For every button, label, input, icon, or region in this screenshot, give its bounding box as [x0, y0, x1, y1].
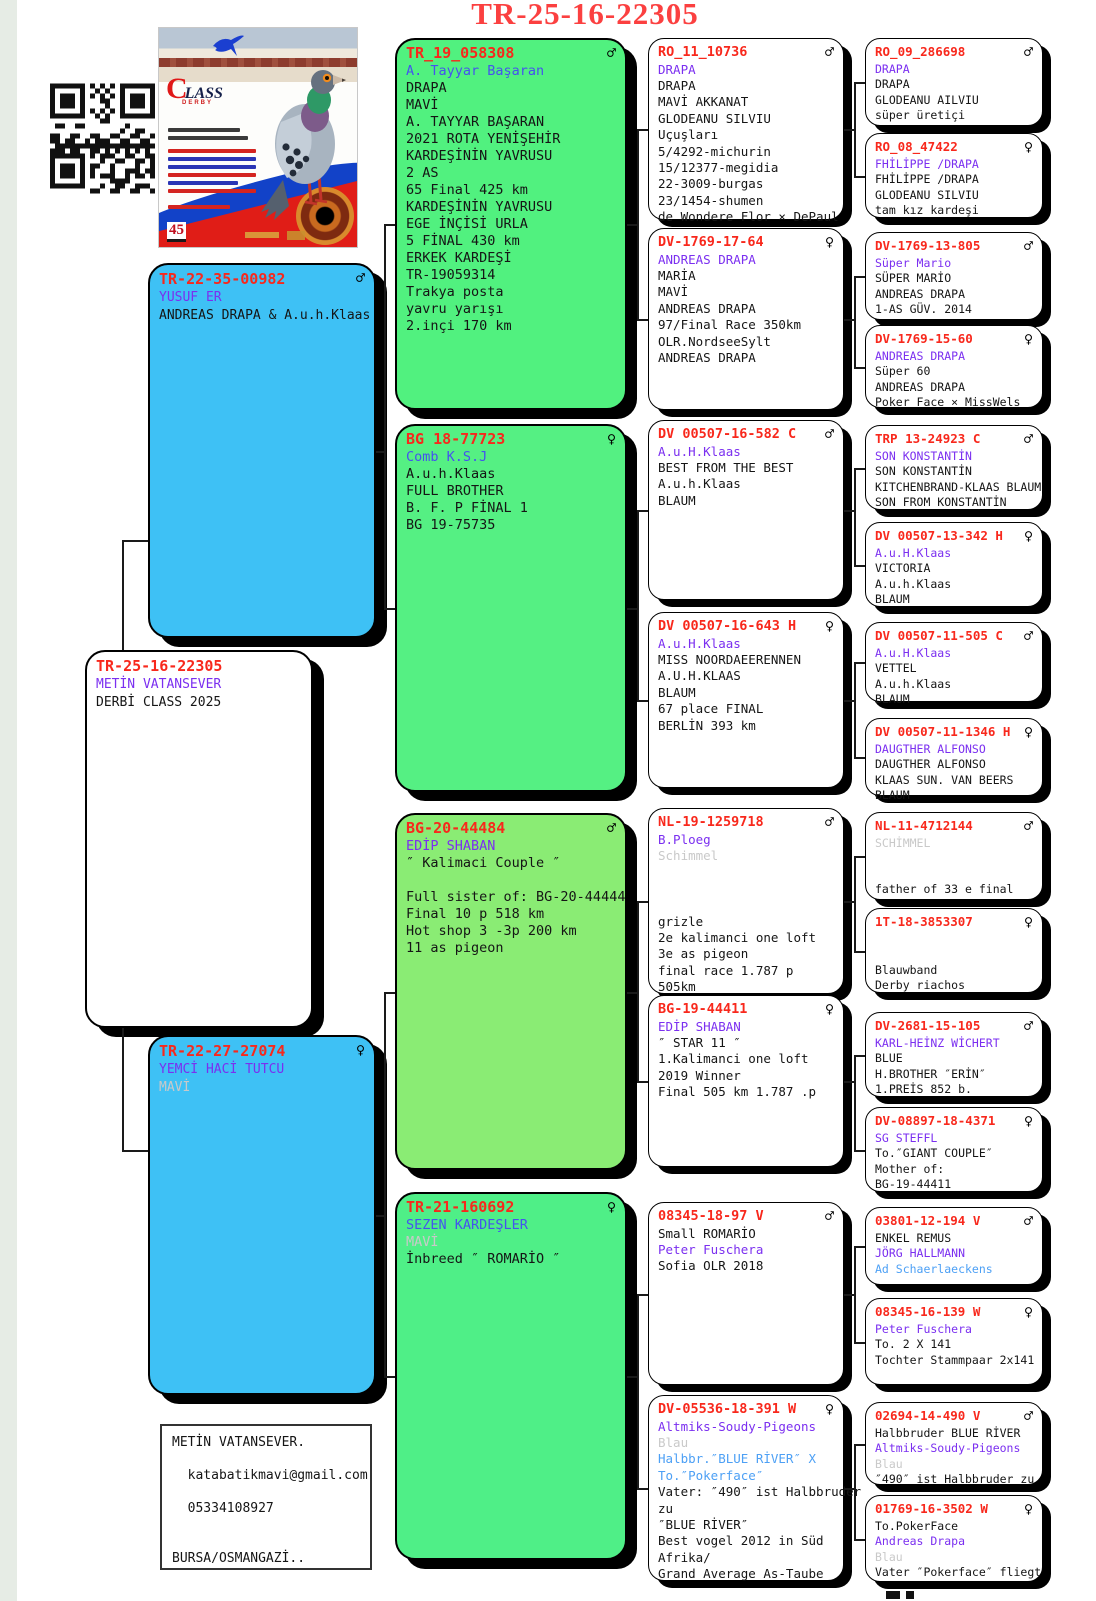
box-line: father of 33 e final [875, 882, 1037, 898]
sex-symbol: ♀ [1024, 724, 1037, 741]
box-line: ANDREAS DRAPA [875, 287, 1037, 303]
pedigree-box-g2: BG 18-77723♀ Comb K.S.JA.u.h.KlaasFULL B… [395, 424, 627, 792]
box-line: A.u.h.Klaas [875, 677, 1037, 693]
sex-symbol: ♀ [1024, 1304, 1037, 1321]
box-line: SCHİMMEL [875, 836, 1037, 852]
box-line: ANDREAS DRAPA [658, 350, 838, 366]
box-line: İnbreed ″ ROMARİO ″ [406, 1251, 620, 1268]
box-line: Afrika/ [658, 1550, 838, 1566]
sex-symbol: ♀ [356, 1042, 369, 1059]
box-line [875, 932, 1037, 948]
box-line: BLAUM [875, 788, 1037, 804]
box-line: Uçuşları [658, 127, 838, 143]
connector-line [637, 1294, 648, 1296]
sex-symbol: ♀ [1024, 1501, 1037, 1518]
box-line: DRAPA [875, 77, 1037, 93]
ring-number: DV-1769-13-805 [875, 238, 980, 254]
ring-number: TRP 13-24923 C [875, 431, 980, 447]
box-line [875, 851, 1037, 867]
ring-number: TR_19_058308 [406, 45, 514, 62]
box-line: Peter Fuschera [658, 1242, 838, 1258]
box-line: A.u.H.Klaas [658, 636, 838, 652]
box-line: BLUE [875, 1051, 1037, 1067]
connector-line [854, 468, 856, 565]
box-line: yavru yarışı [406, 301, 620, 318]
pedigree-box-c4h: DV 00507-11-1346 H♀ DAUGTHER ALFONSODAUG… [865, 718, 1043, 796]
pedigree-box-c4l: DV-08897-18-4371♀ SG STEFFLTo.″GIANT COU… [865, 1107, 1043, 1192]
box-line: SON KONSTANTİN [875, 464, 1037, 480]
box-line: MAVİ [406, 97, 620, 114]
pedigree-box-c4c: DV-1769-13-805♂ Süper MarioSÜPER MARİOAN… [865, 232, 1043, 320]
box-lines: Altmiks-Soudy-PigeonsBlauHalbbr.″BLUE Rİ… [658, 1419, 838, 1583]
box-line: A. TAYYAR BAŞARAN [406, 114, 620, 131]
box-line: ANDREAS DRAPA & A.u.h.Klaas [159, 307, 369, 325]
sex-symbol: ♂ [1024, 1213, 1037, 1230]
box-line: A.u.h.Klaas [875, 577, 1037, 593]
box-header: TR-22-27-27074 ♀ [159, 1042, 369, 1060]
box-line: katabatikmavi@gmail.com [172, 1468, 362, 1485]
box-line: MARİA [658, 268, 838, 284]
box-lines: SON KONSTANTİNSON KONSTANTİNKITCHENBRAND… [875, 449, 1037, 511]
ring-number: DV-08897-18-4371 [875, 1113, 995, 1129]
box-line: Tochter Stammpaar 2x141 [875, 1353, 1037, 1369]
box-line [172, 1534, 362, 1551]
ring-number: 03801-12-194 V [875, 1213, 980, 1229]
box-line: FHİLİPPE /DRAPA [875, 157, 1037, 173]
pedigree-box-c4d: DV-1769-15-60♀ ANDREAS DRAPASüper 60ANDR… [865, 325, 1043, 408]
box-line: 22-3009-burgas [658, 176, 838, 192]
box-line: 11 as pigeon [406, 940, 620, 957]
box-lines: FHİLİPPE /DRAPAFHİLİPPE /DRAPAGLODEANU S… [875, 157, 1037, 219]
connector-line [637, 700, 648, 702]
box-line [172, 1452, 362, 1469]
box-lines: A. Tayyar BaşaranDRAPAMAVİA. TAYYAR BAŞA… [406, 63, 620, 335]
box-line: To.PokerFace [875, 1519, 1037, 1535]
box-line: final race 1.787 p [658, 963, 838, 979]
box-line: Altmiks-Soudy-Pigeons [875, 1441, 1037, 1457]
box-line: Süper 60 [875, 364, 1037, 380]
connector-line [854, 82, 865, 84]
sex-symbol: ♂ [1024, 238, 1037, 255]
box-line: 1.PREİS 852 b. [875, 1082, 1037, 1098]
ring-number: DV-2681-15-105 [875, 1018, 980, 1034]
box-line: 2e kalimanci one loft [658, 930, 838, 946]
box-line: KARL-HEİNZ WİCHERT [875, 1036, 1037, 1052]
box-line: FHİLİPPE /DRAPA [875, 172, 1037, 188]
pedigree-box-c3c: DV 00507-16-582 C♂ A.u.H.KlaasBEST FROM … [648, 420, 844, 600]
pedigree-box-c4p: 01769-16-3502 W♀ To.PokerFaceAndreas Dra… [865, 1495, 1043, 1582]
box-line: Vater: ″490″ ist Halbbruder [658, 1484, 838, 1500]
box-line: 67 place FINAL [658, 701, 838, 717]
pedigree-box-subject: TR-25-16-22305 METİN VATANSEVERDERBİ CLA… [85, 650, 313, 1028]
sex-symbol: ♀ [1024, 139, 1037, 156]
box-lines: SCHİMMELfather of 33 e final [875, 836, 1037, 898]
box-line: Blau [875, 1457, 1037, 1473]
box-line: 65 Final 425 km [406, 182, 620, 199]
box-line: ERKEK KARDEŞİ [406, 250, 620, 267]
box-line: To. 2 X 141 [875, 1337, 1037, 1353]
page-edge-strip [0, 0, 17, 1601]
box-line: MAVİ [159, 1079, 369, 1097]
box-line: ″ STAR 11 ″ [658, 1035, 838, 1051]
box-line: A. Tayyar Başaran [406, 63, 620, 80]
box-line: BLAUM [875, 592, 1037, 608]
box-lines: ENKEL REMUSJÖRG HALLMANNAd Schaerlaecken… [875, 1231, 1037, 1278]
box-line: TR-19059314 [406, 267, 620, 284]
connector-line [122, 540, 148, 542]
connector-line [854, 468, 865, 470]
ring-number: DV-1769-15-60 [875, 331, 973, 347]
box-line [875, 947, 1037, 963]
connector-line [854, 1246, 865, 1248]
connector-line [637, 1081, 648, 1083]
box-line: BEST FROM THE BEST [658, 460, 838, 476]
connector-line [854, 951, 865, 953]
qr-code-pattern [50, 83, 155, 194]
box-line: METİN VATANSEVER [96, 676, 306, 694]
pedigree-box-c3b: DV-1769-17-64♀ ANDREAS DRAPAMARİAMAVİAND… [648, 228, 844, 410]
sex-symbol: ♂ [1024, 1018, 1037, 1035]
box-line: JÖRG HALLMANN [875, 1246, 1037, 1262]
connector-line [637, 510, 648, 512]
box-line: A.u.h.Klaas [658, 476, 838, 492]
pedigree-box-c3e: NL-19-1259718♂ B.PloegSchimmelgrizle2e k… [648, 808, 844, 994]
page-title: TR-25-16-22305 [420, 0, 750, 32]
box-line: EDİP SHABAN [658, 1019, 838, 1035]
box-line: ″BLUE RİVER″ [658, 1517, 838, 1533]
box-line: Final 10 p 518 km [406, 906, 620, 923]
box-line: To.″Pokerface″ [658, 1468, 838, 1484]
badge-45: 45 [167, 222, 186, 242]
box-lines: KARL-HEİNZ WİCHERTBLUEH.BROTHER ″ERİN″1.… [875, 1036, 1037, 1098]
ring-number: TR-21-160692 [406, 1199, 514, 1216]
connector-line [384, 992, 386, 1376]
connector-line [844, 1294, 856, 1296]
pedigree-box-c4j: 1T-18-3853307♀ BlauwbandDerby riachos [865, 908, 1043, 993]
box-line: Final 505 km 1.787 .p [658, 1084, 838, 1100]
box-line: B.Ploeg [658, 832, 838, 848]
box-line: ″490″ ist Halbbruder zu [875, 1472, 1037, 1488]
connector-line [637, 129, 648, 131]
connector-line [637, 901, 648, 903]
box-line: A.U.H.KLAAS [658, 668, 838, 684]
connector-line [854, 1539, 865, 1541]
ring-number: RO_11_10736 [658, 44, 747, 60]
box-line: DRAPA [658, 62, 838, 78]
box-line: SÜPER MARİO [875, 271, 1037, 287]
box-lines: DRAPADRAPAMAVİ AKKANATGLODEANU SILVIUUçu… [658, 62, 838, 226]
pedigree-box-mother: TR-22-27-27074 ♀ YEMCİ HACİ TUTCUMAVİ [148, 1035, 376, 1395]
box-line: DRAPA [658, 78, 838, 94]
box-line: süper üretiçi [875, 108, 1037, 124]
box-lines: EDİP SHABAN″ STAR 11 ″1.Kalimanci one lo… [658, 1019, 838, 1101]
connector-line [854, 662, 856, 757]
box-line: grizle [658, 914, 838, 930]
pedigree-box-c4e: TRP 13-24923 C♂ SON KONSTANTİNSON KONSTA… [865, 425, 1043, 510]
sex-symbol: ♂ [607, 820, 620, 837]
sex-symbol: ♀ [1024, 914, 1037, 931]
box-line: MAVİ [406, 1234, 620, 1251]
connector-line [854, 276, 865, 278]
box-line: Full sister of: BG-20-44444 [406, 889, 620, 906]
box-line: GLODEANU SILVIU [658, 111, 838, 127]
connector-line [384, 224, 386, 608]
pedigree-box-c3g: 08345-18-97 V♂ Small ROMARİOPeter Fusche… [648, 1202, 844, 1385]
box-line [658, 897, 838, 913]
connector-line [854, 1444, 856, 1539]
pedigree-box-c4g: DV 00507-11-505 C♂ A.u.H.KlaasVETTELA.u.… [865, 622, 1043, 702]
connector-line [637, 901, 639, 1081]
pedigree-box-g4: TR-21-160692♀ SEZEN KARDEŞLERMAVİİnbreed… [395, 1192, 627, 1560]
box-line: H.BROTHER ″ERİN″ [875, 1067, 1037, 1083]
box-lines: Halbbruder BLUE RİVERAltmiks-Soudy-Pigeo… [875, 1426, 1037, 1488]
box-line: Peter Fuschera [875, 1322, 1037, 1338]
sex-symbol: ♂ [825, 44, 838, 61]
gold-trophy-mark [287, 231, 305, 240]
sex-symbol: ♂ [825, 426, 838, 443]
pedigree-box-c4a: RO_09_286698♂ DRAPADRAPAGLODEANU AILVIUs… [865, 38, 1043, 126]
ring-number: BG-19-44411 [658, 1001, 747, 1017]
box-line: Grand Average As-Taube [658, 1566, 838, 1582]
box-line: 2 AS [406, 165, 620, 182]
box-line [658, 881, 838, 897]
box-line: Blauwband [875, 963, 1037, 979]
box-line: MAVİ [658, 284, 838, 300]
box-lines: A.u.H.KlaasMISS NOORDAEERENNENA.U.H.KLAA… [658, 636, 838, 734]
connector-line [637, 510, 639, 700]
connector-line [854, 1055, 865, 1057]
connector-line [637, 319, 648, 321]
sex-symbol: ♀ [607, 431, 620, 448]
connector-line [384, 992, 395, 994]
pigeon-photo-card: CLASS DERBY 45 [158, 27, 358, 248]
box-line: 15/12377-megidia [658, 160, 838, 176]
pedigree-box-father: TR-22-35-00982 ♂ YUSUF ERANDREAS DRAPA &… [148, 263, 376, 638]
sex-symbol: ♂ [825, 814, 838, 831]
box-line: 2.inçi 170 km [406, 318, 620, 335]
box-line: YEMCİ HACİ TUTCU [159, 1061, 369, 1079]
pedigree-box-c4f: DV 00507-13-342 H♀ A.u.H.KlaasVICTORIAA.… [865, 522, 1043, 607]
box-line: Schimmel [658, 848, 838, 864]
sex-symbol: ♀ [1024, 1113, 1037, 1130]
box-line: A.u.h.Klaas [406, 466, 620, 483]
box-line: KLAAS SUN. VAN BEERS [875, 773, 1037, 789]
sex-symbol: ♂ [1024, 628, 1037, 645]
box-line: VETTEL [875, 661, 1037, 677]
box-line: ANDREAS DRAPA [658, 252, 838, 268]
box-line: Small ROMARİO [658, 1226, 838, 1242]
ring-number: DV-1769-17-64 [658, 234, 764, 250]
box-line: Poker Face × MissWels [875, 395, 1037, 411]
box-line: MISS NOORDAEERENNEN [658, 652, 838, 668]
pedigree-box-c4m: 03801-12-194 V♂ ENKEL REMUSJÖRG HALLMANN… [865, 1207, 1043, 1285]
sex-symbol: ♀ [825, 618, 838, 635]
box-lines: Peter FuscheraTo. 2 X 141Tochter Stammpa… [875, 1322, 1037, 1369]
connector-line [627, 224, 639, 226]
box-line: Andreas Drapa [875, 1534, 1037, 1550]
box-line: A.u.H.Klaas [658, 444, 838, 460]
box-line: 505km [658, 979, 838, 995]
box-lines: YUSUF ERANDREAS DRAPA & A.u.h.Klaas [159, 289, 369, 325]
connector-line [627, 608, 639, 610]
pedigree-box-c4k: DV-2681-15-105♂ KARL-HEİNZ WİCHERTBLUEH.… [865, 1012, 1043, 1097]
connector-line [854, 1342, 865, 1344]
pedigree-box-c3f: BG-19-44411♀ EDİP SHABAN″ STAR 11 ″1.Kal… [648, 995, 844, 1167]
gold-text-mark [245, 232, 279, 238]
box-line: DAUGTHER ALFONSO [875, 757, 1037, 773]
pedigree-box-c4b: RO_08_47422♀ FHİLİPPE /DRAPAFHİLİPPE /DR… [865, 133, 1043, 218]
box-line [172, 1485, 362, 1502]
pedigree-box-c3d: DV 00507-16-643 H♀ A.u.H.KlaasMISS NOORD… [648, 612, 844, 788]
ring-number: BG 18-77723 [406, 431, 505, 448]
contact-lines: METİN VATANSEVER. katabatikmavi@gmail.co… [172, 1435, 362, 1567]
box-line: Blau [658, 1435, 838, 1451]
sex-symbol: ♀ [825, 234, 838, 251]
connector-line [854, 1444, 865, 1446]
box-line: Süper Mario [875, 256, 1037, 272]
box-line: A.u.H.Klaas [875, 646, 1037, 662]
box-line: ANDREAS DRAPA [658, 301, 838, 317]
box-line: BLAUM [658, 685, 838, 701]
ring-number: DV 00507-11-505 C [875, 628, 1003, 644]
box-line: tam kız kardeşi [875, 203, 1037, 219]
connector-line [854, 1150, 865, 1152]
ring-number: RO_09_286698 [875, 44, 965, 60]
box-line: Best vogel 2012 in Süd [658, 1533, 838, 1549]
connector-line [854, 367, 865, 369]
box-line: ENKEL REMUS [875, 1231, 1037, 1247]
box-line: Comb K.S.J [406, 449, 620, 466]
box-line [875, 867, 1037, 883]
connector-line [637, 1294, 639, 1488]
box-line: 1.Kalimanci one loft [658, 1051, 838, 1067]
box-line: DERBİ CLASS 2025 [96, 694, 306, 712]
connector-line [384, 224, 395, 226]
connector-line [376, 1215, 386, 1217]
pedigree-box-c3h: DV-05536-18-391 W♀ Altmiks-Soudy-Pigeons… [648, 1395, 844, 1581]
pigeon-illustration [253, 52, 357, 224]
box-lines: Small ROMARİOPeter FuscheraSofia OLR 201… [658, 1226, 838, 1275]
box-line: VICTORIA [875, 561, 1037, 577]
box-line: BLAUM [658, 493, 838, 509]
pedigree-box-c4n: 08345-16-139 W♀ Peter FuscheraTo. 2 X 14… [865, 1298, 1043, 1385]
box-line: EDİP SHABAN [406, 838, 620, 855]
ring-number: TR-25-16-22305 [96, 657, 222, 675]
ring-number: TR-22-27-27074 [159, 1042, 285, 1060]
box-lines: To.PokerFaceAndreas DrapaBlauVater ″Poke… [875, 1519, 1037, 1581]
box-line: FULL BROTHER [406, 483, 620, 500]
connector-line [376, 451, 386, 453]
box-lines: A.u.H.KlaasVETTELA.u.h.KlaasBLAUM [875, 646, 1037, 708]
box-lines: EDİP SHABAN″ Kalimaci Couple ″Full siste… [406, 838, 620, 957]
box-line: 2019 Winner [658, 1068, 838, 1084]
box-line: 1-AS GÜV. 2014 [875, 302, 1037, 318]
box-line: SG STEFFL [875, 1131, 1037, 1147]
box-line: 3e as pigeon [658, 946, 838, 962]
box-header: TR-22-35-00982 ♂ [159, 270, 369, 288]
connector-line [854, 565, 865, 567]
page-footer-mark [886, 1591, 900, 1599]
box-line: Vater ″Pokerface″ fliegt [875, 1565, 1037, 1581]
box-line: DRAPA [875, 62, 1037, 78]
pedigree-box-c4o: 02694-14-490 V♂ Halbbruder BLUE RİVERAlt… [865, 1402, 1043, 1485]
connector-line [637, 1488, 648, 1490]
box-line: SON FROM KONSTANTİN [875, 495, 1037, 511]
box-line: 5 FİNAL 430 km [406, 233, 620, 250]
box-line: YUSUF ER [159, 289, 369, 307]
box-line: DAUGTHER ALFONSO [875, 742, 1037, 758]
box-lines: YEMCİ HACİ TUTCUMAVİ [159, 1061, 369, 1097]
connector-line [844, 901, 856, 903]
box-line: 97/Final Race 350km [658, 317, 838, 333]
pedigree-box-c4i: NL-11-4712144♂ SCHİMMELfather of 33 e fi… [865, 812, 1043, 900]
pedigree-page: TR-25-16-22305 CLASS DERBY 45 [0, 0, 1096, 1601]
box-lines: SG STEFFLTo.″GIANT COUPLE″Mother of:BG-1… [875, 1131, 1037, 1193]
box-line: 5/4292-michurin [658, 144, 838, 160]
ring-number: TR-22-35-00982 [159, 270, 285, 288]
sex-symbol: ♂ [1024, 431, 1037, 448]
connector-line [384, 1376, 395, 1378]
box-line: BERLİN 393 km [658, 718, 838, 734]
connector-line [854, 662, 865, 664]
connector-line [627, 1376, 639, 1378]
box-line: Sofia OLR 2018 [658, 1258, 838, 1274]
ring-number: RO_08_47422 [875, 139, 958, 155]
ring-number: 08345-18-97 V [658, 1208, 764, 1224]
bird-icon [211, 34, 245, 60]
box-lines: A.u.H.KlaasBEST FROM THE BESTA.u.h.Klaas… [658, 444, 838, 510]
box-line: EGE İNÇİSİ URLA [406, 216, 620, 233]
box-line: DRAPA [406, 80, 620, 97]
ring-number: DV 00507-11-1346 H [875, 724, 1010, 740]
box-line: zu [658, 1501, 838, 1517]
sex-symbol: ♂ [825, 1208, 838, 1225]
box-line: KARDEŞİNİN YAVRUSU [406, 199, 620, 216]
connector-line [627, 992, 639, 994]
box-line: GLODEANU AILVIU [875, 93, 1037, 109]
box-lines: B.PloegSchimmelgrizle2e kalimanci one lo… [658, 832, 838, 996]
box-lines: Comb K.S.JA.u.h.KlaasFULL BROTHERB. F. P… [406, 449, 620, 534]
connector-line [854, 856, 865, 858]
box-line: OLR.NordseeSylt [658, 334, 838, 350]
connector-line [122, 1150, 148, 1152]
ring-number: DV-05536-18-391 W [658, 1401, 796, 1417]
pedigree-box-g3: BG-20-44484♂ EDİP SHABAN″ Kalimaci Coupl… [395, 813, 627, 1170]
ring-number: DV 00507-16-643 H [658, 618, 796, 634]
box-line [172, 1518, 362, 1535]
box-line: SON KONSTANTİN [875, 449, 1037, 465]
box-line: Trakya posta [406, 284, 620, 301]
box-line: ANDREAS DRAPA [875, 349, 1037, 365]
connector-line [844, 319, 856, 321]
sex-symbol: ♀ [825, 1001, 838, 1018]
connector-line [854, 856, 856, 951]
box-line: SEZEN KARDEŞLER [406, 1217, 620, 1234]
sex-symbol: ♂ [607, 45, 620, 62]
pedigree-box-g1: TR_19_058308♂ A. Tayyar BaşaranDRAPAMAVİ… [395, 38, 627, 410]
box-line: METİN VATANSEVER. [172, 1435, 362, 1452]
box-line: 05334108927 [172, 1501, 362, 1518]
box-line: Ad Schaerlaeckens [875, 1262, 1037, 1278]
box-lines: DAUGTHER ALFONSODAUGTHER ALFONSOKLAAS SU… [875, 742, 1037, 804]
class-logo: CLASS DERBY [166, 72, 223, 106]
ring-number: 02694-14-490 V [875, 1408, 980, 1424]
connector-line [854, 276, 856, 367]
box-lines: A.u.H.KlaasVICTORIAA.u.h.KlaasBLAUM [875, 546, 1037, 608]
connector-line [122, 540, 124, 650]
ring-number: 1T-18-3853307 [875, 914, 973, 930]
sex-symbol: ♀ [1024, 528, 1037, 545]
